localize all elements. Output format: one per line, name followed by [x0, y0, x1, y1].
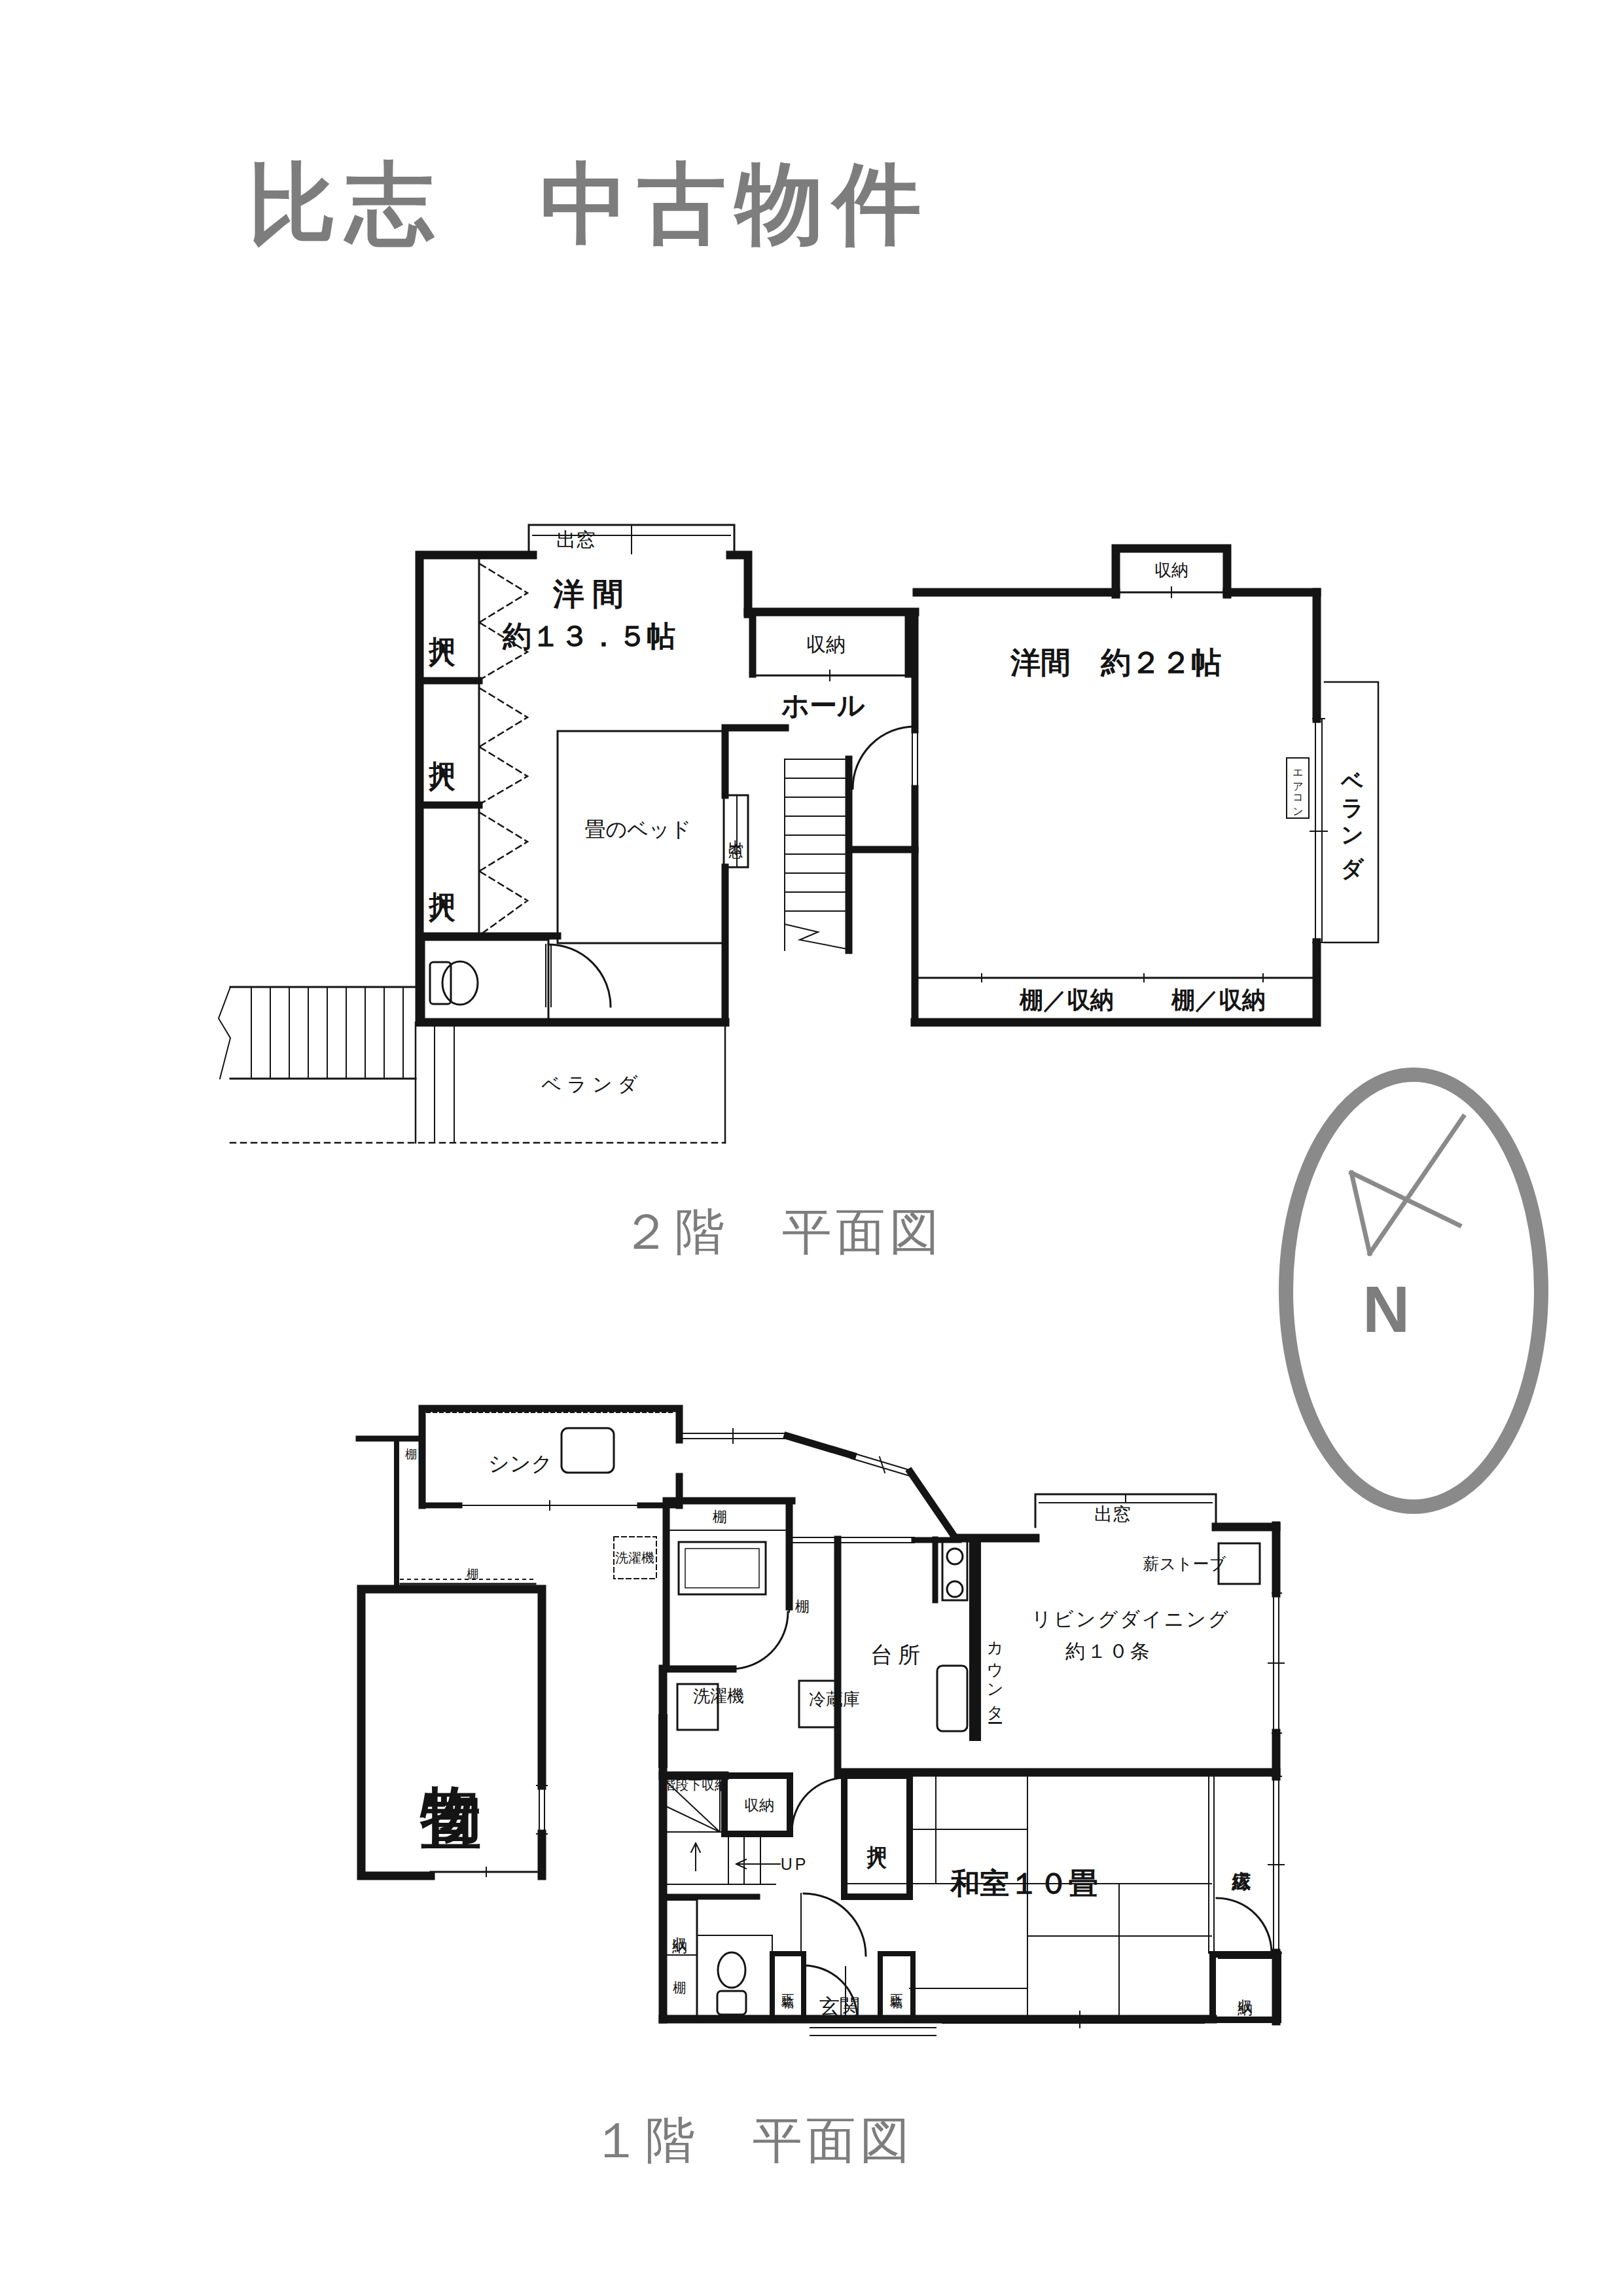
f2-hall-label: ホール: [781, 691, 865, 720]
f2-bay-top-label: 出窓: [556, 529, 596, 550]
f1-bay-window-label: 出窓: [1094, 1505, 1131, 1524]
f2-tatami-bed-label: 畳のベッド: [585, 819, 692, 841]
f1-under-stair-storage-label: 階段下収納: [662, 1778, 728, 1792]
f1-shoe-box2-label: 下駄箱: [890, 1984, 903, 1988]
f1-side-shelf-label: 棚: [795, 1599, 810, 1614]
f2-shelf-storage-left: 棚／収納: [1020, 988, 1114, 1013]
f1-living-name-label: リビングダイニング: [1031, 1609, 1230, 1630]
f1-entrance-label: 玄関: [819, 1996, 860, 2018]
f1-kitchen-label: 台所: [870, 1643, 925, 1667]
f2-room-west-size: 約１３．５帖: [503, 621, 675, 651]
f2-veranda-east-label: ベランダ: [1340, 756, 1364, 867]
f2-closet3-label: 押入: [429, 871, 456, 876]
f1-stair-storage-label: 収納: [744, 1797, 774, 1813]
f1-closet-label: 押入: [866, 1830, 887, 1835]
f1-washer-outdoor-label: 洗濯機: [615, 1551, 654, 1565]
f2-room-east-label: 洋間 約２２帖: [1010, 647, 1221, 678]
plan-linework: [0, 0, 1623, 2296]
f1-storage-left-label: 収納: [672, 1925, 688, 1930]
f1-washer-label: 洗濯機: [693, 1687, 744, 1705]
compass-north-label: N: [1363, 1275, 1410, 1344]
f1-shoe-box1-label: 下駄箱: [781, 1984, 794, 1988]
f1-up-label: UP: [781, 1856, 809, 1873]
f1-fridge-label: 冷蔵庫: [809, 1691, 860, 1708]
f1-storage-se-label: 収納: [1238, 1987, 1253, 1992]
f2-closet2-label: 押入: [429, 740, 456, 745]
f1-storage-shed-label: 物置: [420, 1738, 484, 1751]
f1-hiroen-label: 広縁: [1232, 1855, 1251, 1860]
floor1-caption: １階 平面図: [592, 2114, 914, 2166]
f1-shelf-left-label: 棚: [673, 1981, 686, 1995]
f2-closet1-label: 押入: [429, 616, 456, 621]
floor2-caption: ２階 平面図: [621, 1206, 943, 1258]
floorplan-sheet: 比志 中古物件 出窓 洋間 約１３．５帖 押入 押入 押入 畳のベッド 出窓 ホ…: [0, 0, 1623, 2296]
floor1-plan-drawing: [359, 1408, 1284, 2036]
f1-living-size-label: 約１０条: [1065, 1641, 1152, 1662]
f1-shelf-nook-label: 棚: [405, 1448, 417, 1461]
f2-bay-side-label: 出窓: [728, 827, 744, 833]
f2-veranda-south-label: ベランダ: [542, 1074, 643, 1095]
f1-washitsu-label: 和室１０畳: [951, 1868, 1098, 1899]
f1-sink-label: シンク: [488, 1453, 552, 1475]
f1-wood-stove-label: 薪ストーブ: [1143, 1555, 1226, 1572]
compass-rose: [1286, 1075, 1541, 1507]
f1-utility-shelf-label: 棚: [713, 1509, 727, 1524]
f1-counter-label: カウンター: [987, 1630, 1004, 1717]
f2-hall-closet-label: 収納: [806, 634, 846, 655]
f2-shelf-storage-right: 棚／収納: [1171, 988, 1266, 1013]
f2-aircon-label: エアコン: [1293, 763, 1304, 814]
f2-east-closet-label: 収納: [1154, 562, 1188, 579]
floor2-plan-drawing: [219, 525, 1378, 1143]
f2-room-west-name: 洋間: [553, 578, 632, 611]
f1-shelf-corridor-label: 棚: [467, 1568, 478, 1581]
page-title: 比志 中古物件: [248, 158, 931, 251]
